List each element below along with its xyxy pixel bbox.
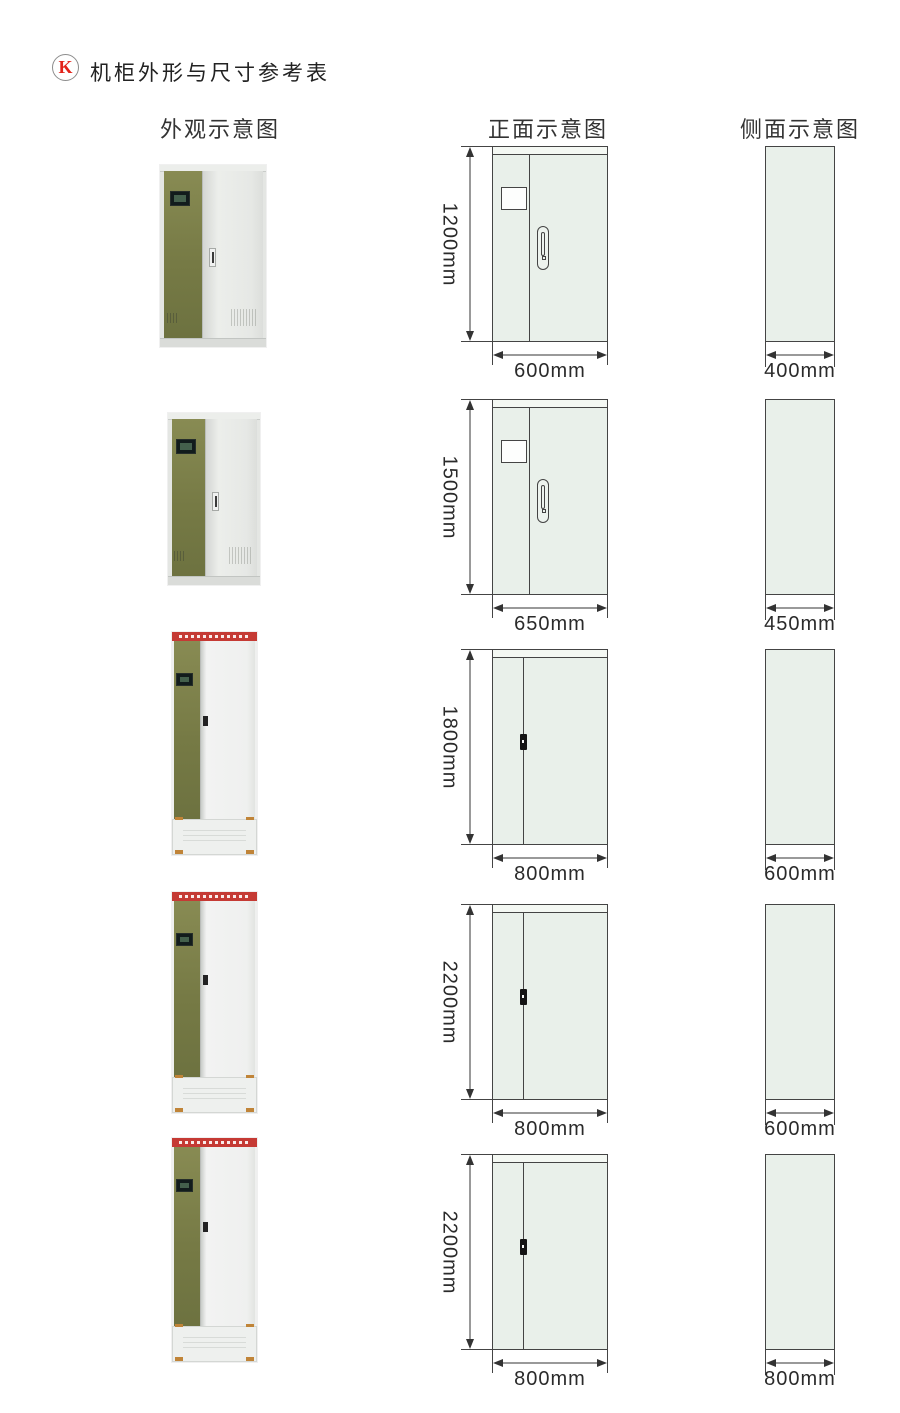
photo-display-screen	[176, 1179, 193, 1192]
cabinet-photo	[172, 1138, 257, 1362]
height-dimension-label: 1500mm	[438, 448, 461, 548]
cabinet-row-4: 2200mm 800mm 600mm	[0, 901, 900, 1151]
width-dimension-label: 800mm	[482, 1118, 618, 1141]
photo-green-panel	[172, 419, 205, 577]
photo-plinth	[172, 819, 257, 855]
photo-bracket	[246, 1075, 254, 1078]
photo-door-handle	[212, 492, 219, 511]
side-view-drawing	[765, 649, 835, 845]
height-dimension-label: 1800mm	[438, 698, 461, 798]
photo-vent-grille	[229, 547, 253, 564]
photo-door-panel	[200, 1147, 256, 1326]
depth-dimension-label: 400mm	[755, 360, 845, 383]
door-lock	[520, 989, 527, 1005]
depth-dimension-label: 600mm	[755, 1118, 845, 1141]
photo-green-panel	[174, 901, 200, 1077]
height-dimension-label: 2200mm	[438, 1203, 461, 1303]
door-lock	[520, 734, 527, 750]
depth-dimension-label: 800mm	[755, 1368, 845, 1391]
column-header-front-view: 正面示意图	[478, 112, 618, 144]
photo-door-panel	[202, 171, 262, 339]
photo-vent-grille	[167, 313, 178, 323]
k-section-badge-icon: K	[52, 54, 79, 81]
door-divider-line	[529, 154, 530, 341]
height-dimension-label: 1200mm	[438, 195, 461, 295]
door-divider-line	[523, 657, 524, 844]
front-view-drawing	[492, 1154, 608, 1350]
photo-bracket	[175, 817, 183, 820]
cabinet-top-strip	[493, 400, 607, 408]
door-divider-line	[523, 912, 524, 1099]
cabinet-top-strip	[493, 1155, 607, 1163]
photo-door-lock	[203, 1222, 208, 1232]
height-dimension-arrow	[461, 1154, 479, 1350]
cabinet-photo	[172, 892, 257, 1113]
door-lock	[520, 1239, 527, 1255]
photo-display-screen	[170, 191, 190, 206]
width-dimension-label: 650mm	[482, 613, 618, 636]
photo-plinth	[172, 1326, 257, 1362]
photo-display-screen	[176, 439, 196, 454]
photo-door-lock	[203, 975, 208, 985]
photo-foot	[246, 1357, 254, 1361]
photo-door-lock	[203, 716, 208, 726]
photo-green-panel	[174, 641, 200, 819]
height-dimension-arrow	[461, 904, 479, 1100]
width-dimension-label: 800mm	[482, 863, 618, 886]
photo-door-panel	[200, 901, 256, 1077]
photo-bracket	[246, 817, 254, 820]
photo-green-panel	[174, 1147, 200, 1326]
front-view-drawing	[492, 399, 608, 595]
depth-dimension-label: 600mm	[755, 863, 845, 886]
photo-foot	[175, 1357, 183, 1361]
photo-door-handle	[209, 248, 216, 267]
photo-foot	[175, 850, 183, 854]
front-view-drawing	[492, 146, 608, 342]
column-header-side-view: 侧面示意图	[730, 112, 870, 144]
front-view-drawing	[492, 904, 608, 1100]
photo-green-panel	[164, 171, 202, 339]
photo-base	[160, 338, 266, 347]
cabinet-row-2: 1500mm 650mm 450mm	[0, 396, 900, 646]
height-dimension-label: 2200mm	[438, 953, 461, 1053]
display-window	[501, 187, 527, 210]
column-header-appearance: 外观示意图	[150, 112, 290, 144]
photo-bracket	[246, 1324, 254, 1327]
photo-vent-grille	[231, 309, 258, 326]
photo-base	[168, 576, 260, 585]
photo-red-banner	[172, 1138, 257, 1147]
cabinet-photo	[172, 632, 257, 855]
door-divider-line	[523, 1162, 524, 1349]
door-handle	[537, 479, 549, 523]
photo-door-panel	[205, 419, 257, 577]
handle-slot	[541, 232, 545, 256]
height-dimension-arrow	[461, 399, 479, 595]
cabinet-top-strip	[493, 650, 607, 658]
cabinet-row-3: 1800mm 800mm 600mm	[0, 646, 900, 896]
cabinet-row-5: 2200mm 800mm 800mm	[0, 1151, 900, 1401]
height-dimension-arrow	[461, 649, 479, 845]
photo-display-screen	[176, 933, 193, 946]
depth-dimension-label: 450mm	[755, 613, 845, 636]
photo-red-banner	[172, 632, 257, 641]
photo-foot	[246, 850, 254, 854]
cabinet-top-strip	[493, 147, 607, 155]
door-divider-line	[529, 407, 530, 594]
display-window	[501, 440, 527, 463]
photo-bracket	[175, 1324, 183, 1327]
side-view-drawing	[765, 1154, 835, 1350]
photo-foot	[246, 1108, 254, 1112]
side-view-drawing	[765, 146, 835, 342]
front-view-drawing	[492, 649, 608, 845]
photo-display-screen	[176, 673, 193, 686]
side-view-drawing	[765, 904, 835, 1100]
photo-foot	[175, 1108, 183, 1112]
cabinet-photo	[168, 413, 260, 585]
cabinet-photo	[160, 165, 266, 347]
photo-door-panel	[200, 641, 256, 819]
door-handle	[537, 226, 549, 270]
photo-red-banner	[172, 892, 257, 901]
side-view-drawing	[765, 399, 835, 595]
width-dimension-label: 600mm	[482, 360, 618, 383]
height-dimension-arrow	[461, 146, 479, 342]
width-dimension-label: 800mm	[482, 1368, 618, 1391]
cabinet-row-1: 1200mm 600mm 400mm	[0, 143, 900, 393]
cabinet-top-strip	[493, 905, 607, 913]
photo-bracket	[175, 1075, 183, 1078]
photo-vent-grille	[174, 551, 183, 561]
page-title: 机柜外形与尺寸参考表	[90, 57, 330, 87]
handle-slot	[541, 485, 545, 509]
photo-plinth	[172, 1077, 257, 1113]
